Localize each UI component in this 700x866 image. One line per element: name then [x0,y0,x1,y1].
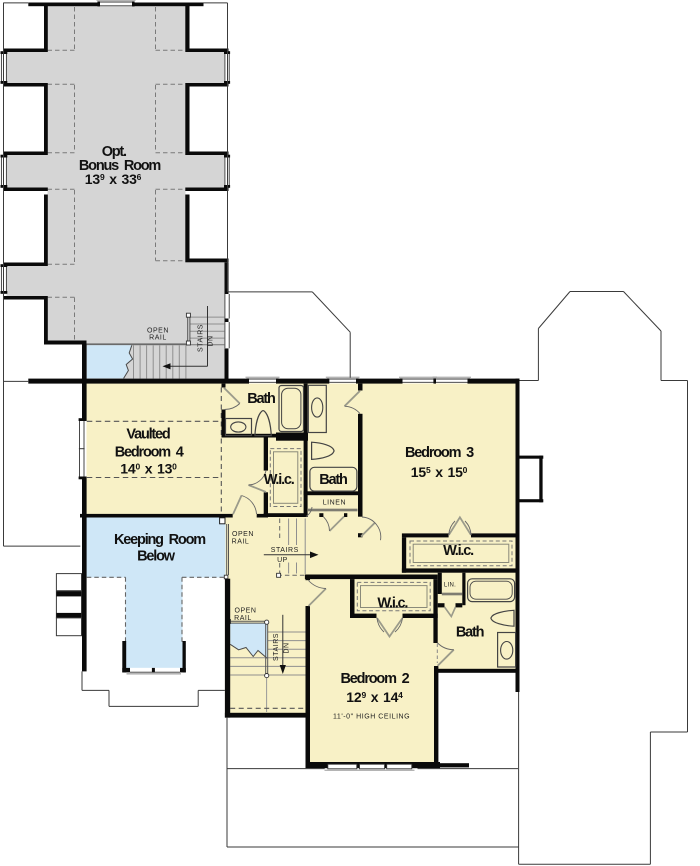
svg-text:RAIL: RAIL [232,539,250,546]
svg-text:STAIRS: STAIRS [273,633,280,661]
svg-text:OPEN: OPEN [147,327,169,334]
svg-text:UP: UP [277,557,288,564]
svg-text:155 x 150: 155 x 150 [411,464,468,480]
svg-text:139 x 336: 139 x 336 [85,171,142,187]
svg-text:140 x 130: 140 x 130 [120,461,177,477]
svg-text:DN: DN [208,335,215,346]
svg-text:Bedroom 2: Bedroom 2 [341,671,410,687]
svg-text:RAIL: RAIL [234,615,252,622]
svg-text:RAIL: RAIL [149,335,167,342]
svg-text:OPEN: OPEN [234,608,256,615]
svg-text:OPEN: OPEN [232,531,254,538]
svg-text:W.i.c.: W.i.c. [377,595,408,611]
svg-text:Bath: Bath [456,625,484,641]
svg-text:LIN.: LIN. [444,582,456,588]
svg-text:STAIRS: STAIRS [271,547,299,554]
svg-text:Bedroom 4: Bedroom 4 [115,445,184,461]
svg-text:W.i.c.: W.i.c. [443,543,474,559]
svg-text:129 x 144: 129 x 144 [346,689,403,705]
svg-text:11'-0" HIGH CEILING: 11'-0" HIGH CEILING [333,714,410,721]
svg-text:LINEN: LINEN [323,499,346,506]
svg-text:W.i.c.: W.i.c. [264,472,295,488]
svg-text:STAIRS: STAIRS [198,324,205,352]
svg-text:DN: DN [284,642,291,653]
svg-text:Keeping Room: Keeping Room [114,532,205,548]
svg-text:Bath: Bath [247,391,275,407]
svg-text:Bath: Bath [319,472,347,488]
svg-text:Bedroom 3: Bedroom 3 [405,445,474,461]
svg-text:Below: Below [137,549,176,565]
svg-text:Vaulted: Vaulted [126,427,170,443]
